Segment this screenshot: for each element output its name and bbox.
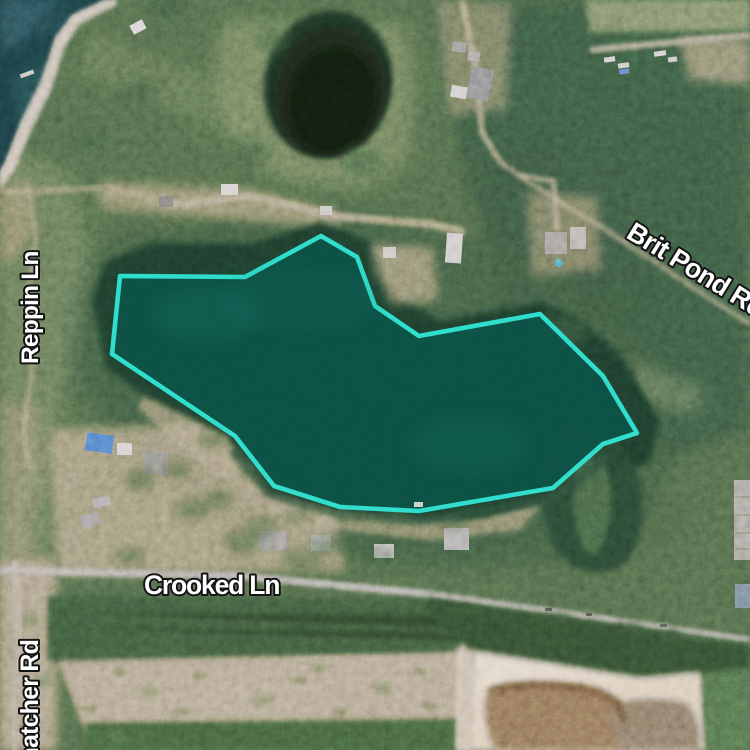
svg-text:Thatcher Rd: Thatcher Rd xyxy=(16,640,44,750)
svg-text:Reppin Ln: Reppin Ln xyxy=(17,251,44,364)
svg-text:Crooked Ln: Crooked Ln xyxy=(144,570,279,600)
